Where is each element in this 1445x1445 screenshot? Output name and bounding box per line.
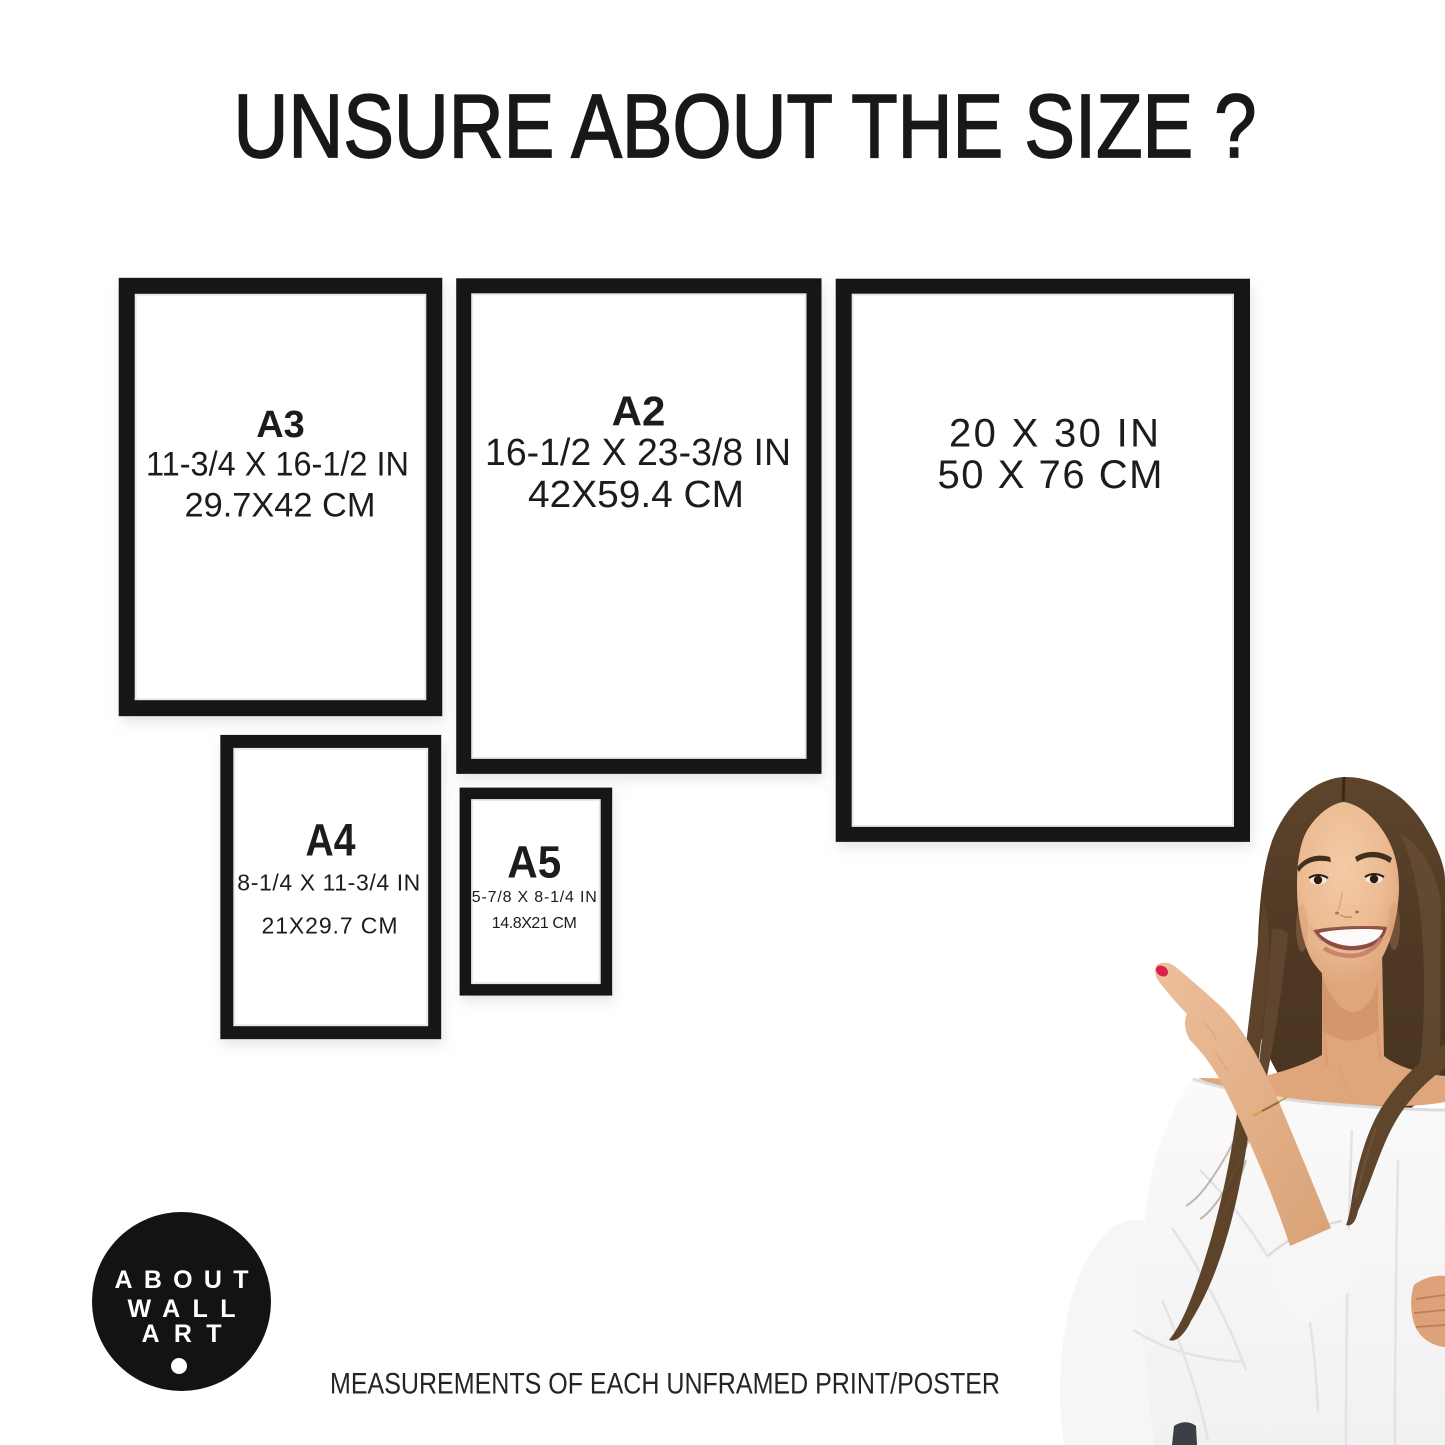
svg-text:11-3/4 X 16-1/2 IN: 11-3/4 X 16-1/2 IN — [146, 445, 409, 483]
svg-text:20 X 30 IN: 20 X 30 IN — [949, 412, 1159, 456]
svg-text:ART: ART — [142, 1320, 222, 1348]
svg-text:8-1/4 X 11-3/4 IN: 8-1/4 X 11-3/4 IN — [237, 869, 420, 895]
svg-text:42X59.4 CM: 42X59.4 CM — [528, 474, 744, 516]
svg-text:16-1/2 X 23-3/8 IN: 16-1/2 X 23-3/8 IN — [485, 432, 791, 474]
svg-text:21X29.7 CM: 21X29.7 CM — [262, 912, 398, 938]
svg-text:50 X 76 CM: 50 X 76 CM — [938, 453, 1163, 497]
svg-text:A5: A5 — [507, 836, 561, 887]
svg-text:29.7X42 CM: 29.7X42 CM — [185, 486, 376, 524]
svg-text:MEASUREMENTS OF EACH UNFRAMED: MEASUREMENTS OF EACH UNFRAMED PRINT/POST… — [330, 1368, 1000, 1401]
svg-text:A3: A3 — [256, 404, 305, 446]
svg-text:UNSURE ABOUT THE SIZE ?: UNSURE ABOUT THE SIZE ? — [234, 77, 1257, 177]
svg-text:A2: A2 — [612, 387, 666, 434]
svg-text:14.8X21 CM: 14.8X21 CM — [492, 915, 577, 932]
svg-text:A4: A4 — [306, 814, 356, 865]
svg-text:5-7/8 X 8-1/4 IN: 5-7/8 X 8-1/4 IN — [472, 889, 597, 906]
